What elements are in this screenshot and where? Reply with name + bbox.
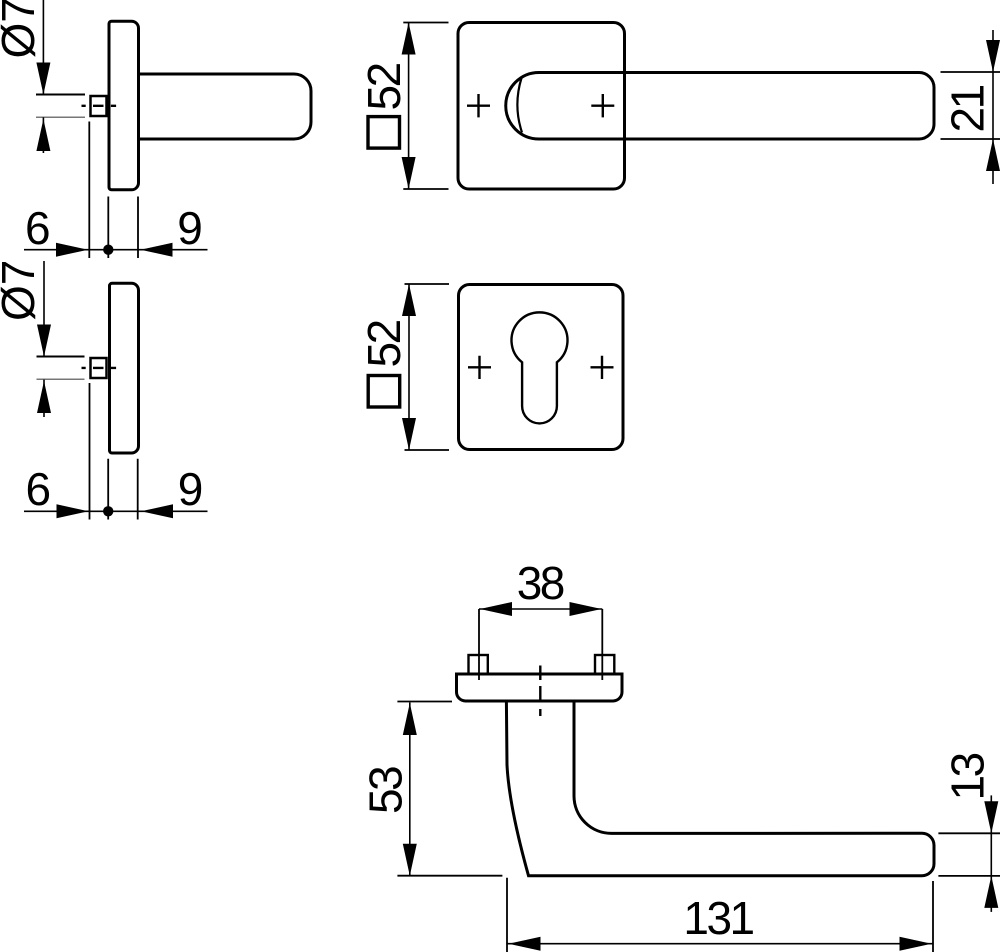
svg-text:6: 6: [25, 202, 51, 254]
svg-text:Ø7: Ø7: [0, 0, 44, 59]
svg-text:Ø7: Ø7: [0, 260, 44, 321]
svg-text:53: 53: [359, 767, 411, 814]
svg-text:38: 38: [517, 557, 564, 609]
svg-text:52: 52: [358, 63, 410, 110]
svg-text:52: 52: [358, 320, 410, 367]
svg-text:21: 21: [942, 85, 994, 132]
svg-text:131: 131: [683, 892, 753, 944]
svg-text:6: 6: [26, 463, 52, 515]
svg-text:9: 9: [177, 202, 203, 254]
svg-text:9: 9: [178, 463, 204, 515]
svg-text:13: 13: [942, 753, 994, 800]
